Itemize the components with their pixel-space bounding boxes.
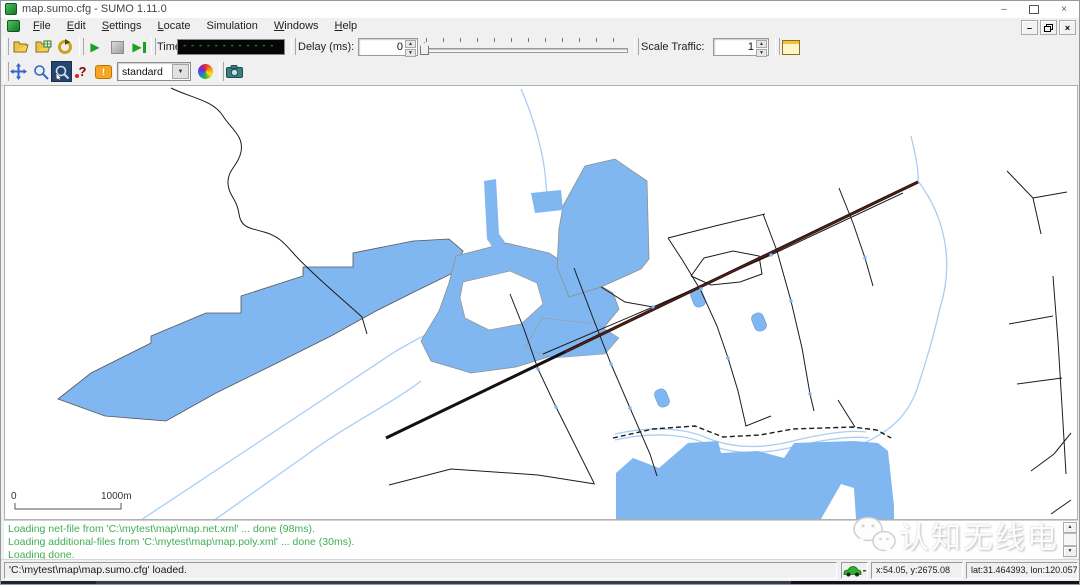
- slider-ticks: [426, 38, 628, 42]
- scale-distance-label: 1000m: [101, 491, 132, 502]
- mdi-restore-button[interactable]: [1040, 20, 1057, 35]
- statusbar: 'C:\mytest\map\map.sumo.cfg' loaded. x:5…: [1, 559, 1079, 581]
- open-network-button[interactable]: [33, 37, 53, 57]
- map-canvas[interactable]: 0 1000m: [5, 86, 1077, 519]
- recenter-view-button[interactable]: [8, 61, 29, 82]
- log-line: Loading additional-files from 'C:\mytest…: [4, 536, 1078, 549]
- menu-settings[interactable]: Settings: [94, 18, 150, 35]
- sumo-app-icon: [5, 3, 17, 15]
- scale-traffic-spinbox[interactable]: 1 ▲▼: [713, 38, 769, 56]
- toolbar-grip[interactable]: [79, 38, 84, 55]
- log-scrollbar[interactable]: ▲ ▼: [1063, 522, 1077, 559]
- open-folder-icon: [13, 40, 30, 54]
- sumo-gui-window: map.sumo.cfg - SUMO 1.11.0 – × File Edit…: [0, 0, 1080, 585]
- map-viewport[interactable]: 0 1000m: [4, 85, 1078, 520]
- scale-spin-down-icon[interactable]: ▼: [756, 49, 767, 57]
- mdi-close-button[interactable]: ×: [1059, 20, 1076, 35]
- log-line: Loading done.: [4, 549, 1078, 559]
- simulation-toolbar: ▶ ▶ Time: -------------- Delay (ms): 0 ▲…: [1, 35, 1079, 60]
- scale-traffic-label: Scale Traffic:: [641, 35, 704, 59]
- scale-bar: 0 1000m: [11, 491, 132, 509]
- delay-value: 0: [397, 41, 403, 53]
- message-log[interactable]: Loading net-file from 'C:\mytest\map\map…: [4, 520, 1078, 559]
- menu-locate[interactable]: Locate: [149, 18, 198, 35]
- slider-handle[interactable]: [420, 42, 429, 55]
- delay-spin-down-icon[interactable]: ▼: [405, 49, 416, 57]
- camera-icon: [226, 65, 243, 78]
- magnifier-cursor-icon: [54, 64, 70, 80]
- status-latlon-panel: lat:31.464393, lon:120.057947: [966, 562, 1078, 579]
- small-ponds: [653, 287, 768, 408]
- cursor-xy-coordinates: x:54.05, y:2675.08: [872, 563, 962, 578]
- pond-patch: [531, 190, 563, 213]
- step-button[interactable]: ▶: [129, 37, 149, 57]
- menu-help[interactable]: Help: [327, 18, 366, 35]
- question-icon: ?: [79, 64, 87, 79]
- menubar: File Edit Settings Locate Simulation Win…: [1, 18, 1079, 36]
- delay-slider[interactable]: [420, 37, 630, 57]
- zoom-button[interactable]: [30, 61, 51, 82]
- lake-northeast: [557, 159, 649, 297]
- vehicle-indicator-button[interactable]: [841, 562, 868, 579]
- edit-coloring-button[interactable]: [195, 61, 216, 82]
- zoom-select-tool-button[interactable]: [51, 61, 72, 82]
- stop-button[interactable]: [107, 37, 127, 57]
- stop-icon: [111, 41, 124, 54]
- scale-zero-label: 0: [11, 491, 17, 502]
- menu-edit[interactable]: Edit: [59, 18, 94, 35]
- window-close-button[interactable]: ×: [1049, 1, 1079, 18]
- delay-label: Delay (ms):: [298, 35, 354, 59]
- channel: [484, 179, 505, 253]
- mdi-close-icon: ×: [1065, 23, 1070, 33]
- pan-arrows-icon: [10, 63, 27, 80]
- menu-windows[interactable]: Windows: [266, 18, 327, 35]
- toolbar-grip[interactable]: [4, 38, 9, 55]
- warning-bubble-icon: !: [95, 65, 112, 79]
- mdi-restore-icon: [1044, 24, 1053, 32]
- message-warning-button[interactable]: !: [93, 61, 114, 82]
- mdi-minimize-button[interactable]: –: [1021, 20, 1038, 35]
- view-toolbar: ? ! standard ▼: [1, 59, 1079, 86]
- slider-track[interactable]: [422, 48, 628, 53]
- scroll-thumb[interactable]: [1063, 533, 1077, 546]
- open-config-button[interactable]: [11, 37, 31, 57]
- status-message: 'C:\mytest\map\map.sumo.cfg' loaded.: [5, 563, 836, 578]
- delay-spin-up-icon[interactable]: ▲: [405, 40, 416, 48]
- maximize-icon: [1029, 5, 1039, 14]
- open-network-icon: [35, 40, 52, 54]
- scale-spin-up-icon[interactable]: ▲: [756, 40, 767, 48]
- toolbar-grip[interactable]: [775, 38, 780, 55]
- window-maximize-button[interactable]: [1019, 1, 1049, 18]
- run-button[interactable]: ▶: [85, 37, 105, 57]
- magnifier-icon: [33, 64, 49, 80]
- cursor-geo-coordinates: lat:31.464393, lon:120.057947: [967, 563, 1077, 578]
- reload-button[interactable]: [55, 37, 75, 57]
- titlebar: map.sumo.cfg - SUMO 1.11.0 – ×: [1, 1, 1079, 19]
- time-lcd-display: --------------: [177, 39, 285, 55]
- water-layer: [58, 159, 894, 519]
- mdi-minimize-icon: –: [1027, 23, 1032, 33]
- toolbar-grip[interactable]: [634, 38, 639, 55]
- car-icon: [842, 564, 867, 578]
- play-icon: ▶: [90, 41, 99, 53]
- coloring-scheme-dropdown[interactable]: standard ▼: [117, 62, 191, 81]
- dropdown-arrow-icon[interactable]: ▼: [172, 64, 189, 79]
- color-wheel-icon: [198, 64, 213, 79]
- toolbar-grip[interactable]: [151, 38, 156, 55]
- reload-icon: [57, 39, 73, 55]
- new-view-button[interactable]: [781, 37, 801, 57]
- scale-traffic-value: 1: [748, 41, 754, 53]
- close-icon: ×: [1061, 1, 1067, 18]
- minimize-icon: –: [1001, 1, 1007, 18]
- taskbar-edge: [1, 581, 1079, 585]
- menu-simulation[interactable]: Simulation: [199, 18, 266, 35]
- scroll-down-icon[interactable]: ▼: [1063, 546, 1077, 557]
- menu-file[interactable]: File: [25, 18, 59, 35]
- locate-junction-button[interactable]: ?: [72, 61, 93, 82]
- new-window-icon: [782, 40, 800, 55]
- step-icon: ▶: [132, 41, 145, 53]
- window-title: map.sumo.cfg - SUMO 1.11.0: [22, 3, 167, 15]
- log-line: Loading net-file from 'C:\mytest\map\map…: [4, 523, 1078, 536]
- screenshot-button[interactable]: [224, 61, 245, 82]
- toolbar-grip[interactable]: [291, 38, 296, 55]
- scroll-up-icon[interactable]: ▲: [1063, 522, 1077, 533]
- window-minimize-button[interactable]: –: [989, 1, 1019, 18]
- status-xy-panel: x:54.05, y:2675.08: [871, 562, 963, 579]
- mdi-child-icon: [7, 20, 20, 32]
- status-message-panel: 'C:\mytest\map\map.sumo.cfg' loaded.: [4, 562, 837, 579]
- delay-spinbox[interactable]: 0 ▲▼: [358, 38, 418, 56]
- coloring-scheme-value: standard: [122, 66, 163, 78]
